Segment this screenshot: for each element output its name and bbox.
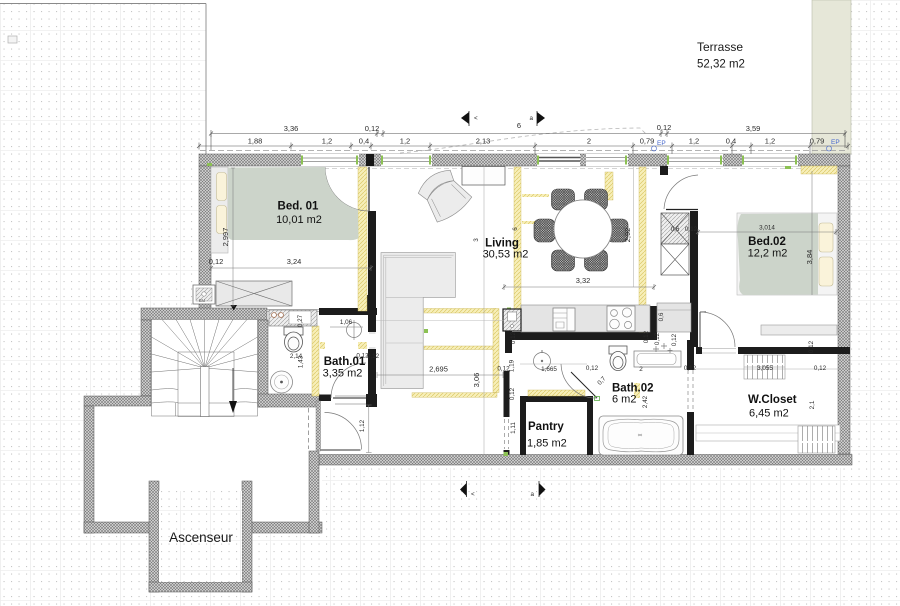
svg-text:0,6: 0,6 xyxy=(658,312,665,321)
svg-text:1,2: 1,2 xyxy=(322,137,332,146)
svg-text:6 m2: 6 m2 xyxy=(612,394,636,406)
svg-text:3,06: 3,06 xyxy=(472,373,481,388)
svg-text:2: 2 xyxy=(587,137,591,146)
svg-text:1,2: 1,2 xyxy=(689,137,699,146)
svg-text:3,055: 3,055 xyxy=(757,365,773,372)
svg-text:1,665: 1,665 xyxy=(541,366,557,373)
svg-text:1,12: 1,12 xyxy=(359,419,366,432)
svg-text:0,12: 0,12 xyxy=(510,331,517,344)
svg-text:W.Closet: W.Closet xyxy=(748,394,797,406)
svg-text:Bed. 01: Bed. 01 xyxy=(278,201,320,213)
svg-text:EU: EU xyxy=(199,298,205,303)
svg-text:6,45 m2: 6,45 m2 xyxy=(749,408,789,420)
svg-text:0,27: 0,27 xyxy=(297,314,304,327)
svg-text:2: 2 xyxy=(639,366,643,373)
svg-text:2,92: 2,92 xyxy=(623,228,632,243)
svg-text:30,53 m2: 30,53 m2 xyxy=(483,249,529,261)
svg-text:0,79: 0,79 xyxy=(640,137,655,146)
svg-text:0,12: 0,12 xyxy=(509,387,516,400)
svg-text:0,4: 0,4 xyxy=(359,137,369,146)
svg-text:Bath.01: Bath.01 xyxy=(324,356,366,368)
svg-text:2,42: 2,42 xyxy=(642,395,649,408)
svg-text:1,88: 1,88 xyxy=(248,137,263,146)
svg-text:0,12: 0,12 xyxy=(654,332,661,345)
svg-text:12,2 m2: 12,2 m2 xyxy=(748,248,788,260)
svg-text:0,12: 0,12 xyxy=(209,257,224,266)
svg-text:6: 6 xyxy=(517,121,521,130)
svg-text:1,2: 1,2 xyxy=(400,137,410,146)
svg-text:0,12: 0,12 xyxy=(684,365,697,372)
svg-text:0,12: 0,12 xyxy=(685,226,698,233)
svg-text:Bed.02: Bed.02 xyxy=(748,236,786,248)
svg-text:1,85 m2: 1,85 m2 xyxy=(527,438,567,450)
svg-text:Terrasse: Terrasse xyxy=(697,40,743,54)
svg-text:1,11: 1,11 xyxy=(510,422,517,434)
svg-text:3,014: 3,014 xyxy=(759,225,775,232)
svg-text:10,01 m2: 10,01 m2 xyxy=(276,214,322,226)
svg-text:0,12: 0,12 xyxy=(497,366,510,373)
svg-text:6: 6 xyxy=(512,227,519,231)
svg-text:1,06: 1,06 xyxy=(340,319,353,326)
svg-text:Ascenseur: Ascenseur xyxy=(169,530,233,545)
svg-text:EP: EP xyxy=(831,139,840,146)
svg-text:3,59: 3,59 xyxy=(746,124,761,133)
svg-text:0,12: 0,12 xyxy=(808,340,815,353)
svg-text:0,12: 0,12 xyxy=(586,365,599,372)
svg-text:0,12: 0,12 xyxy=(814,365,827,372)
svg-text:a: a xyxy=(529,115,533,122)
svg-text:0,12: 0,12 xyxy=(365,124,380,133)
svg-text:3,84: 3,84 xyxy=(805,250,814,265)
svg-text:3,24: 3,24 xyxy=(287,257,302,266)
svg-text:2,997: 2,997 xyxy=(221,228,230,247)
svg-text:a: a xyxy=(530,491,534,498)
svg-text:EP: EP xyxy=(657,140,666,147)
svg-text:2,1: 2,1 xyxy=(809,400,816,409)
svg-text:3: 3 xyxy=(473,238,480,242)
svg-text:0,12: 0,12 xyxy=(657,123,672,132)
svg-text:3,36: 3,36 xyxy=(284,124,299,133)
svg-text:2,695: 2,695 xyxy=(429,365,448,374)
svg-text:0,4: 0,4 xyxy=(726,137,736,146)
svg-text:0,79: 0,79 xyxy=(810,137,825,146)
svg-text:0,6: 0,6 xyxy=(671,226,680,233)
svg-text:2,13: 2,13 xyxy=(476,137,491,146)
svg-text:<: < xyxy=(474,115,478,122)
svg-text:0,12: 0,12 xyxy=(643,330,650,343)
svg-text:2,14: 2,14 xyxy=(290,353,303,360)
svg-text:52,32 m2: 52,32 m2 xyxy=(697,59,745,71)
svg-text:0,12: 0,12 xyxy=(367,353,380,360)
svg-text:3,32: 3,32 xyxy=(576,276,591,285)
svg-text:3,35 m2: 3,35 m2 xyxy=(323,368,363,380)
svg-text:<: < xyxy=(471,491,475,498)
svg-text:0,12: 0,12 xyxy=(671,333,678,346)
svg-text:Pantry: Pantry xyxy=(528,421,564,433)
svg-text:1,2: 1,2 xyxy=(765,137,775,146)
